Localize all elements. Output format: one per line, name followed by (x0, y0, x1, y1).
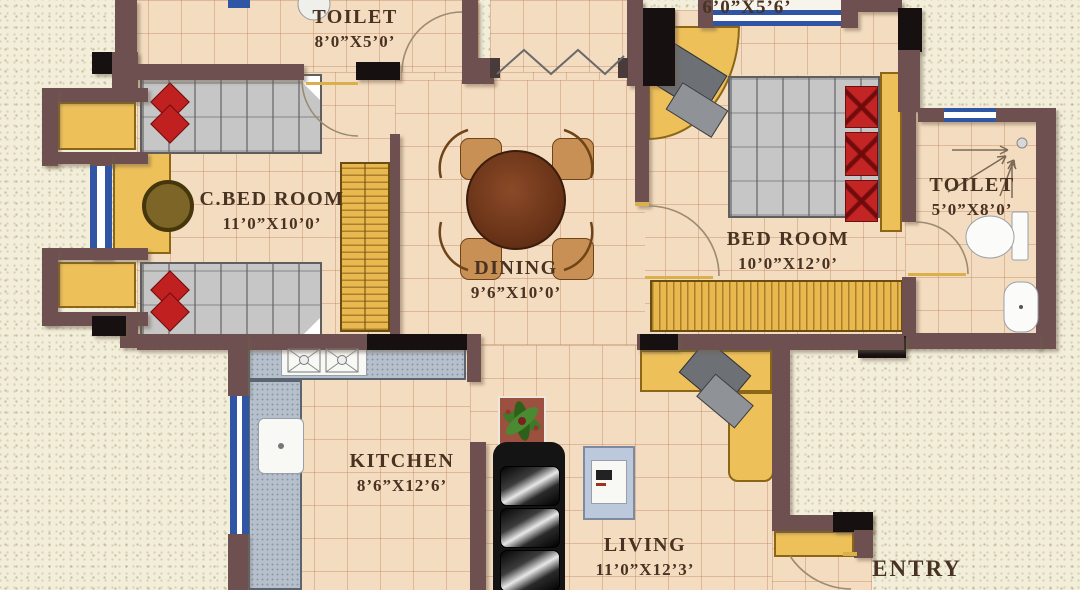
room-label-bedroom: BED ROOM 10’0”X12’0’ (727, 226, 850, 276)
column (367, 334, 469, 350)
room-name: TOILET (929, 172, 1014, 198)
wall (902, 333, 1040, 349)
wall (390, 134, 400, 334)
floor-toilet-right (905, 112, 1040, 345)
floor-plan: TOILET 8’0”X5’0’ 6’0”X5’6’ C.BED ROOM 11… (0, 0, 1080, 590)
sofa-cushion-icon (500, 550, 560, 590)
room-label-entry: ENTRY (872, 556, 962, 582)
round-table-icon (142, 180, 194, 232)
pillow-icon (845, 132, 878, 176)
folding-door-post (618, 58, 628, 78)
room-label-utility: 6’0”X5’6’ (702, 0, 791, 20)
room-name: LIVING (596, 532, 695, 558)
door-threshold (306, 82, 358, 85)
sofa-cushion-icon (500, 466, 560, 506)
room-size: 10’0”X12’0’ (727, 252, 850, 276)
room-label-cbedroom: C.BED ROOM 11’0”X10’0’ (200, 186, 345, 236)
tv-icon (596, 470, 612, 480)
wall (228, 334, 248, 396)
wall (841, 0, 858, 28)
column (833, 512, 873, 532)
wall (627, 0, 643, 86)
plant-icon (498, 396, 546, 448)
room-label-kitchen: KITCHEN 8’6”X12’6’ (350, 448, 455, 498)
wall (228, 534, 248, 590)
room-label-dining: DINING 9’6”X10’0’ (471, 255, 561, 305)
dining-table-icon (466, 150, 566, 250)
room-size: 9’6”X10’0’ (471, 281, 561, 305)
window (230, 396, 249, 534)
room-name: DINING (471, 255, 561, 281)
room-size: 8’0”X5’0’ (312, 30, 397, 54)
pillow-icon (845, 180, 878, 222)
room-label-toilet-top: TOILET 8’0”X5’0’ (312, 4, 397, 54)
shoe-rack-icon (774, 531, 854, 557)
room-size: 11’0”X10’0’ (200, 212, 345, 236)
wall (90, 152, 112, 166)
wall (902, 112, 916, 222)
window (944, 108, 996, 122)
wardrobe-icon (650, 280, 903, 332)
column (640, 334, 678, 350)
wall (137, 334, 367, 350)
wardrobe-icon (340, 162, 390, 332)
sink-icon (258, 418, 304, 474)
door-threshold (645, 276, 713, 279)
column (356, 62, 400, 80)
wall (1036, 108, 1056, 349)
pillow-icon (152, 274, 192, 330)
room-name: KITCHEN (350, 448, 455, 474)
wall (137, 64, 304, 80)
sofa-cushion-icon (500, 508, 560, 548)
room-label-toilet-right: TOILET 5’0”X8’0’ (929, 172, 1014, 222)
room-name: TOILET (312, 4, 397, 30)
tv-stand-icon (596, 483, 606, 486)
room-size: 6’0”X5’6’ (702, 0, 791, 20)
window (228, 0, 250, 8)
kitchen-counter-icon (248, 380, 302, 590)
window (90, 166, 112, 248)
wall (772, 350, 790, 515)
bedside-unit-bottom-icon (58, 262, 136, 308)
wall (898, 50, 920, 112)
room-size: 5’0”X8’0’ (929, 198, 1014, 222)
room-size: 11’0”X12’3’ (596, 558, 695, 582)
wall (112, 52, 138, 90)
pillow-icon (845, 86, 878, 128)
room-name: BED ROOM (727, 226, 850, 252)
column (643, 8, 675, 86)
room-name: C.BED ROOM (200, 186, 345, 212)
column (898, 8, 922, 52)
door-threshold (843, 552, 857, 556)
wall (462, 0, 478, 84)
pillow-icon (152, 86, 192, 142)
room-label-living: LIVING 11’0”X12’3’ (596, 532, 695, 582)
wall (467, 334, 481, 382)
wall (858, 0, 902, 12)
folding-door-post (490, 58, 500, 78)
column (92, 316, 126, 336)
room-size: 8’6”X12’6’ (350, 474, 455, 498)
wall-cap (635, 202, 649, 206)
wall (470, 442, 486, 590)
bedside-unit-top-icon (58, 102, 136, 150)
wall (635, 86, 649, 206)
room-name: ENTRY (872, 556, 962, 582)
door-threshold (908, 273, 966, 276)
tv-panel-icon (591, 460, 627, 504)
